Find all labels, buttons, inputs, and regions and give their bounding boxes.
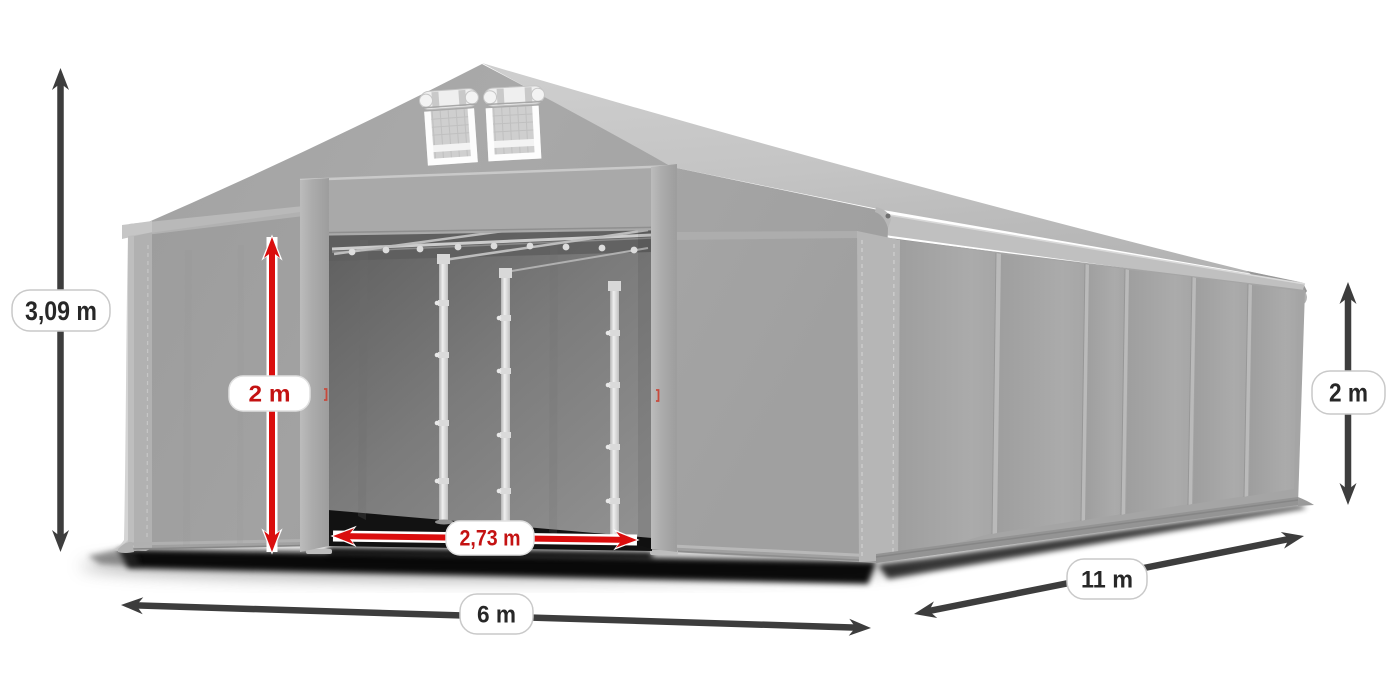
svg-text:2,73 m: 2,73 m	[460, 526, 521, 551]
svg-text:6 m: 6 m	[477, 601, 516, 628]
svg-text:2 m: 2 m	[1329, 378, 1368, 408]
svg-text:11 m: 11 m	[1081, 566, 1133, 593]
svg-text:3,09 m: 3,09 m	[25, 296, 97, 326]
svg-text:2 m: 2 m	[249, 381, 291, 407]
